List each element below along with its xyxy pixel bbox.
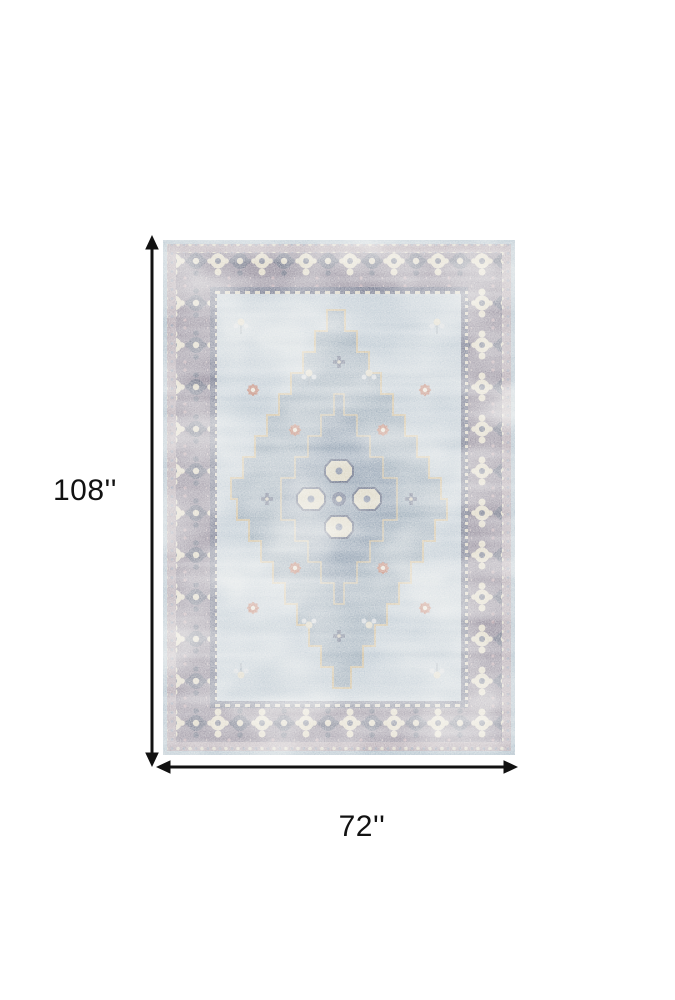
arrow-left-icon bbox=[156, 760, 171, 774]
width-dimension-label: 72'' bbox=[312, 810, 412, 844]
rug-graphic bbox=[163, 240, 515, 755]
arrow-right-icon bbox=[504, 760, 519, 774]
width-arrow bbox=[154, 756, 520, 778]
height-arrow bbox=[141, 233, 163, 769]
height-dimension-label: 108'' bbox=[35, 474, 135, 508]
product-dimension-diagram: 108'' 72'' bbox=[0, 0, 675, 1000]
rug-image bbox=[163, 240, 515, 755]
arrow-up-icon bbox=[145, 235, 159, 250]
